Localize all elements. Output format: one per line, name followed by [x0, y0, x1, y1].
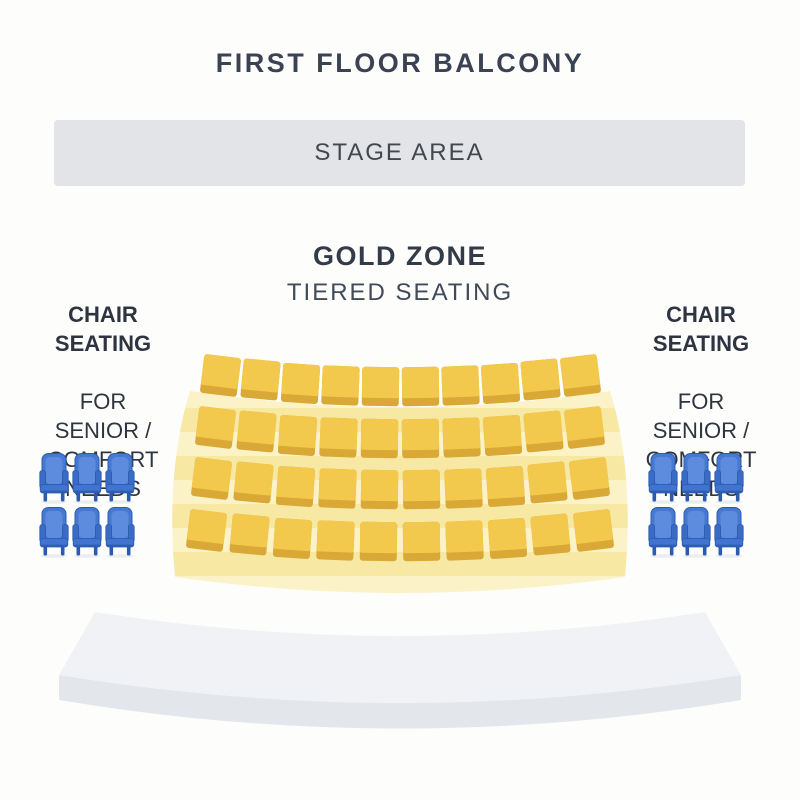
platform-and-balcony-graphics — [0, 0, 800, 800]
chair-icon — [39, 506, 69, 558]
gold-seat-top-face — [361, 419, 398, 450]
chair-icon — [72, 506, 102, 558]
gold-seat[interactable] — [403, 522, 441, 561]
gold-seat-top-face — [320, 417, 358, 449]
gold-seat[interactable] — [488, 517, 528, 558]
gold-seat-top-face — [444, 468, 482, 500]
gold-seat[interactable] — [240, 359, 281, 401]
gold-seat[interactable] — [361, 367, 399, 406]
gold-seat-top-face — [402, 419, 439, 450]
gold-seat-top-face — [360, 522, 397, 553]
gold-seat[interactable] — [445, 520, 484, 560]
gold-seat-top-face — [483, 414, 522, 447]
gold-seat-top-face — [520, 359, 560, 393]
gold-seat-top-face — [564, 406, 605, 441]
gold-seat-top-face — [196, 406, 237, 441]
chair-icon — [105, 506, 135, 558]
chair-icon — [714, 452, 744, 504]
gold-seat[interactable] — [199, 354, 240, 397]
gold-seat[interactable] — [233, 462, 274, 504]
gold-seat[interactable] — [564, 406, 605, 449]
chair-icon — [681, 506, 711, 558]
gold-seat-top-face — [191, 457, 232, 492]
gold-seat[interactable] — [480, 362, 520, 403]
gold-seat[interactable] — [316, 520, 355, 560]
gold-seat-top-face — [318, 468, 356, 500]
gold-seat-top-face — [233, 462, 273, 496]
gold-seat-top-face — [317, 520, 355, 552]
gold-seat[interactable] — [523, 411, 564, 453]
accessible-chair[interactable] — [681, 452, 711, 504]
gold-seat[interactable] — [402, 419, 440, 458]
gold-seat-top-face — [403, 522, 440, 553]
gold-seat-top-face — [559, 354, 600, 389]
gold-seat[interactable] — [485, 465, 525, 506]
gold-seat[interactable] — [195, 406, 236, 449]
gold-seat[interactable] — [319, 417, 358, 457]
gold-seat-top-face — [523, 411, 563, 445]
gold-seat[interactable] — [402, 470, 440, 509]
gold-seat[interactable] — [360, 470, 398, 509]
chair-icon — [72, 452, 102, 504]
gold-seat-top-face — [485, 465, 524, 498]
gold-seat-top-face — [200, 354, 241, 389]
gold-seat-top-face — [187, 509, 228, 544]
gold-seat-top-face — [361, 367, 398, 398]
gold-seat-top-face — [568, 457, 609, 492]
gold-seat[interactable] — [401, 367, 439, 406]
gold-seat-top-face — [573, 509, 614, 544]
gold-seat-top-face — [237, 411, 277, 445]
gold-seat-top-face — [480, 362, 519, 395]
gold-seat[interactable] — [186, 509, 227, 552]
gold-seat[interactable] — [275, 465, 315, 506]
gold-seat[interactable] — [361, 419, 399, 458]
gold-seat[interactable] — [568, 457, 609, 500]
accessible-chair[interactable] — [39, 452, 69, 504]
accessible-chair[interactable] — [681, 506, 711, 558]
gold-seat-top-face — [442, 417, 480, 449]
chair-icon — [105, 452, 135, 504]
gold-seat[interactable] — [527, 462, 568, 504]
gold-seat[interactable] — [530, 514, 571, 556]
gold-seat-top-face — [321, 365, 359, 397]
accessible-chair[interactable] — [105, 452, 135, 504]
gold-seat-top-face — [530, 514, 570, 548]
seating-map: FIRST FLOOR BALCONY STAGE AREA GOLD ZONE… — [0, 0, 800, 800]
gold-seat[interactable] — [360, 522, 398, 561]
gold-seat[interactable] — [559, 354, 600, 397]
accessible-chair[interactable] — [648, 452, 678, 504]
gold-seat[interactable] — [442, 417, 481, 457]
gold-seat[interactable] — [573, 509, 614, 552]
gold-seat-top-face — [360, 470, 397, 501]
gold-seat-top-face — [240, 359, 280, 393]
gold-seat-top-face — [445, 520, 483, 552]
chair-icon — [648, 506, 678, 558]
chair-icon — [648, 452, 678, 504]
gold-seat[interactable] — [483, 414, 523, 455]
accessible-chair[interactable] — [72, 452, 102, 504]
gold-seat-top-face — [527, 462, 567, 496]
gold-seat[interactable] — [321, 365, 360, 405]
gold-seat-top-face — [278, 414, 317, 447]
gold-seat[interactable] — [229, 514, 270, 556]
chair-icon — [39, 452, 69, 504]
gold-seat-top-face — [488, 517, 527, 550]
gold-seat[interactable] — [190, 457, 231, 500]
gold-seat[interactable] — [280, 362, 320, 403]
accessible-chair[interactable] — [72, 506, 102, 558]
gold-seat-top-face — [230, 514, 270, 548]
gold-seat[interactable] — [520, 359, 561, 401]
gold-seat-top-face — [401, 367, 438, 398]
gold-seat-top-face — [441, 365, 479, 397]
accessible-chair[interactable] — [39, 506, 69, 558]
accessible-chair[interactable] — [714, 506, 744, 558]
gold-seat[interactable] — [273, 517, 313, 558]
gold-seat-top-face — [402, 470, 439, 501]
gold-seat[interactable] — [444, 468, 483, 508]
gold-seat-top-face — [281, 362, 320, 395]
accessible-chair[interactable] — [648, 506, 678, 558]
gold-seat[interactable] — [236, 411, 277, 453]
gold-seat-top-face — [276, 465, 315, 498]
gold-seat[interactable] — [278, 414, 318, 455]
gold-seat[interactable] — [318, 468, 357, 508]
gold-seat[interactable] — [441, 365, 480, 405]
accessible-chair[interactable] — [105, 506, 135, 558]
chair-icon — [714, 506, 744, 558]
accessible-chair[interactable] — [714, 452, 744, 504]
gold-seat-top-face — [273, 517, 312, 550]
chair-icon — [681, 452, 711, 504]
